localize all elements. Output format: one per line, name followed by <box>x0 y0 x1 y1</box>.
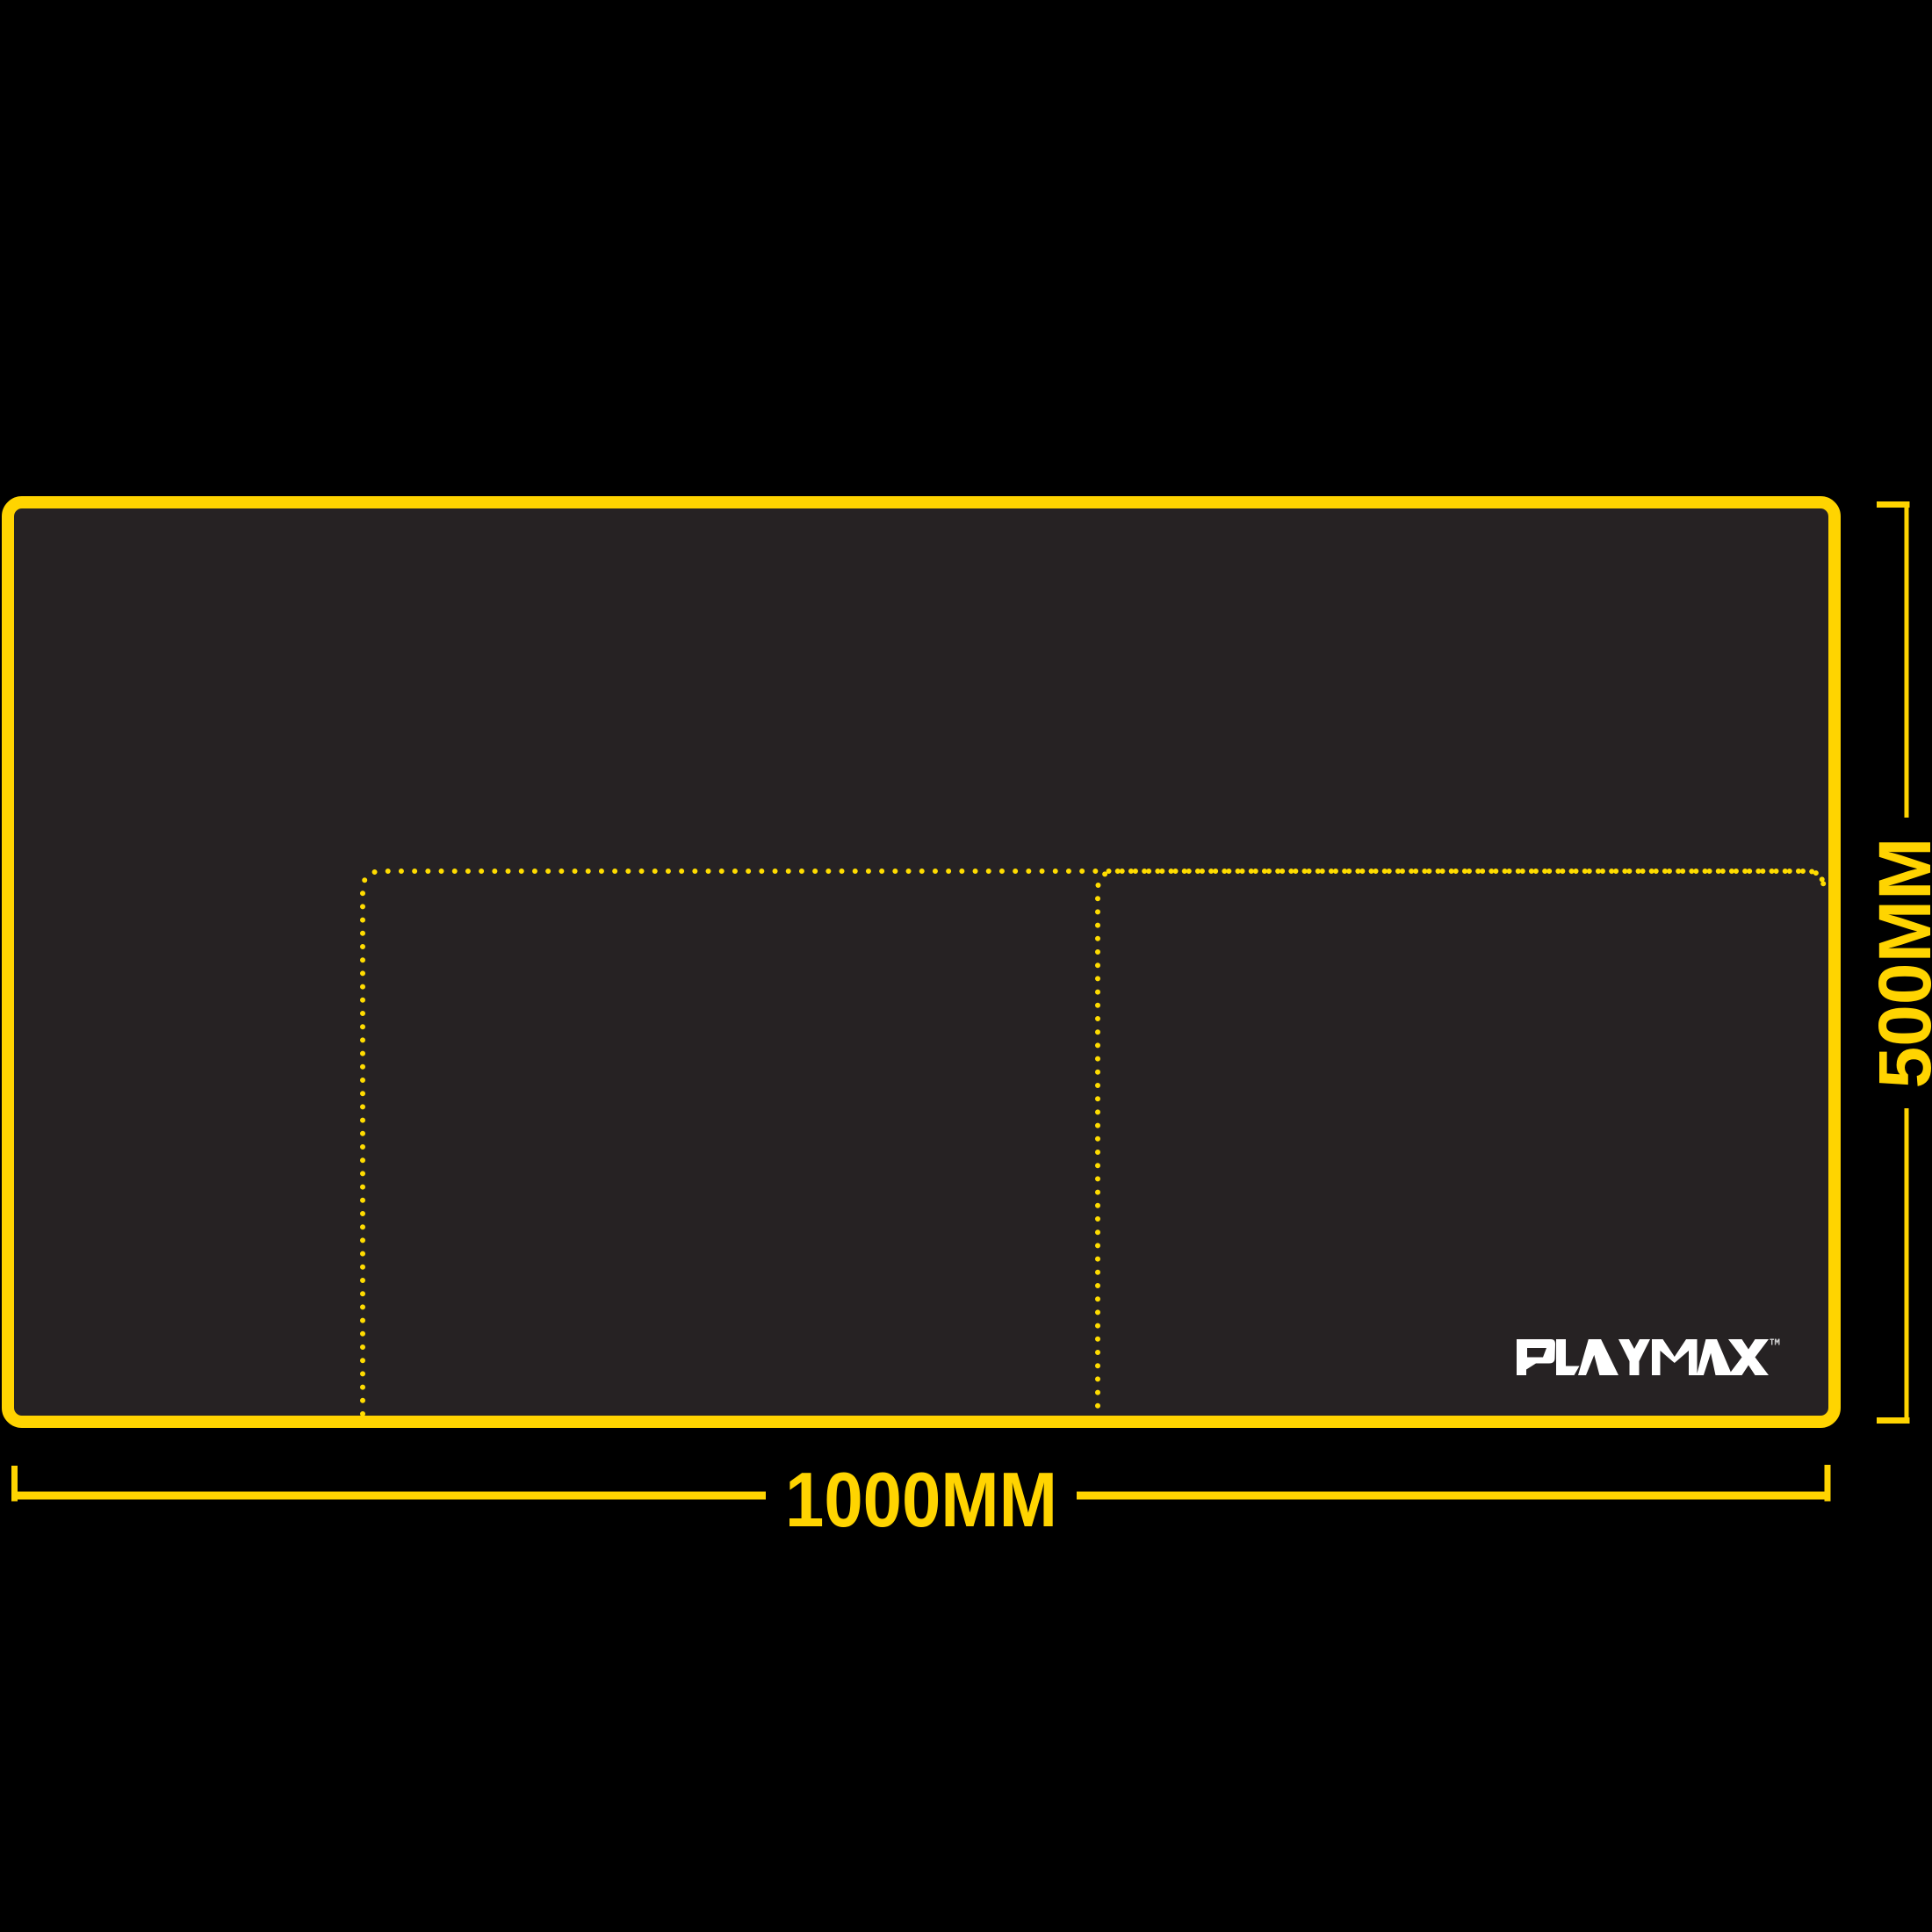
svg-text:500MM: 500MM <box>1864 838 1932 1089</box>
svg-text:1000MM: 1000MM <box>785 1456 1057 1543</box>
